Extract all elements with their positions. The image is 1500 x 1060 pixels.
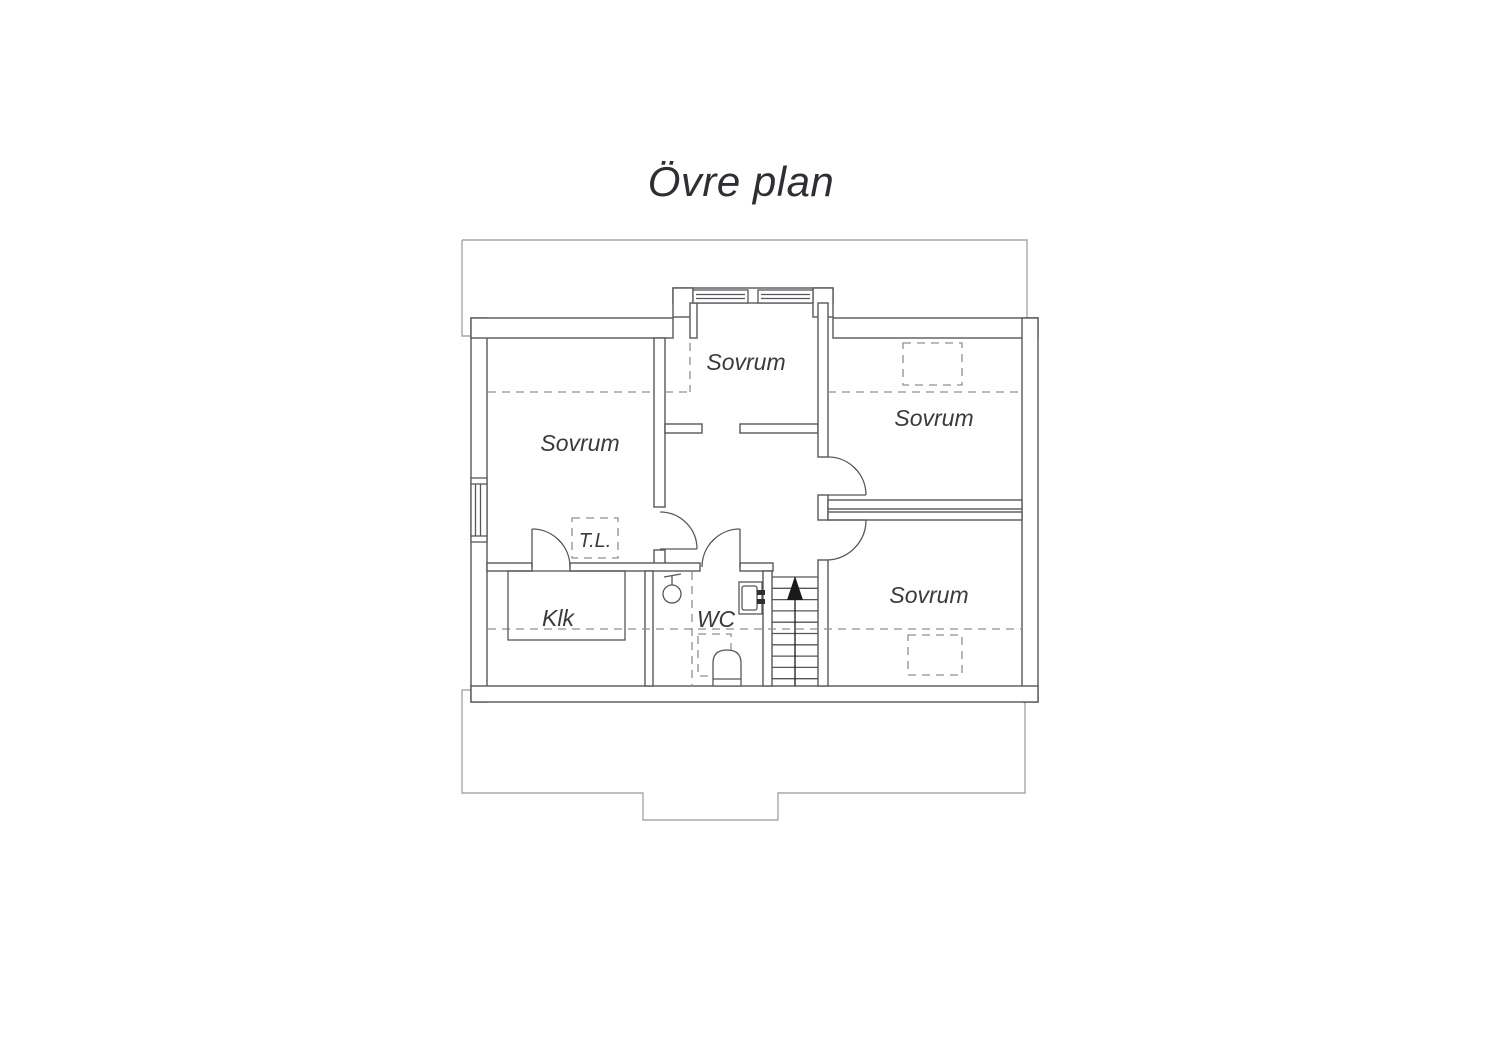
dashed-square-bottom-right [908,635,962,675]
door-sovrum-right-bottom [828,520,866,560]
dormer [673,288,833,338]
room-label-wc: WC [697,606,736,632]
room-label-sovrum-left: Sovrum [540,430,619,456]
floorplan-svg: Övre plan [0,0,1500,1060]
stairs [772,576,818,686]
shower-icon [663,574,681,603]
page-title: Övre plan [648,158,835,205]
door-klk [532,529,570,567]
room-label-sovrum-right-top: Sovrum [894,405,973,431]
door-sovrum-right-top [828,457,866,495]
stair-direction-arrow up-arrow-icon [787,576,803,686]
door-wc [702,529,740,567]
sink-icon [739,582,765,614]
room-label-klk: Klk [542,605,575,631]
room-label-tl: T.L. [579,530,612,552]
dormer-window-left window-icon [693,290,748,303]
dashed-square-top-right [903,343,962,385]
floor-plan-page: Övre plan [0,0,1500,1060]
door-sovrum-left [660,512,697,549]
left-wall-window window-icon [471,478,487,542]
exterior-walls [471,318,1038,702]
room-label-sovrum-right-bottom: Sovrum [889,582,968,608]
toilet-icon [713,650,741,686]
dormer-window-right window-icon [758,290,813,303]
room-label-sovrum-top: Sovrum [706,349,785,375]
